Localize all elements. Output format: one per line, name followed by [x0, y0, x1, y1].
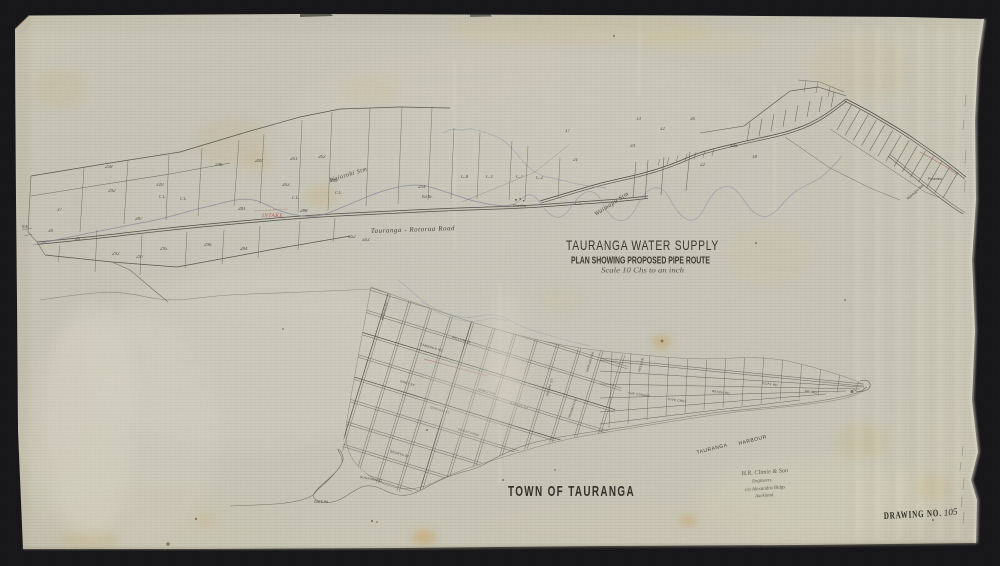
svg-text:105: 105 [943, 507, 958, 519]
svg-text:269: 269 [255, 159, 263, 164]
svg-text:320: 320 [156, 183, 164, 188]
svg-text:288: 288 [300, 209, 308, 214]
svg-text:254: 254 [418, 185, 426, 190]
svg-text:287: 287 [135, 217, 143, 222]
svg-text:262: 262 [318, 155, 326, 160]
svg-text:261: 261 [290, 157, 298, 162]
svg-text:C.L.: C.L. [335, 190, 342, 195]
svg-text:C.2: C.2 [536, 176, 544, 181]
svg-text:21: 21 [573, 158, 578, 163]
svg-text:17: 17 [565, 129, 571, 134]
svg-text:W.R.: W.R. [22, 225, 29, 229]
svg-text:292: 292 [108, 189, 116, 194]
svg-text:TAURANGA WATER SUPPLY: TAURANGA WATER SUPPLY [566, 238, 719, 253]
svg-text:INTAKE: INTAKE [261, 213, 283, 219]
svg-text:C.L.: C.L. [292, 195, 299, 200]
svg-text:40a: 40a [730, 144, 738, 149]
svg-text:C.L.: C.L. [159, 194, 166, 199]
svg-text:36: 36 [690, 117, 696, 122]
svg-text:18: 18 [752, 155, 758, 160]
svg-text:TOWN OF TAURANGA: TOWN OF TAURANGA [508, 484, 635, 500]
svg-text:263: 263 [282, 183, 290, 188]
svg-text:13: 13 [636, 117, 642, 122]
svg-text:37: 37 [57, 208, 63, 213]
svg-text:295: 295 [160, 247, 168, 252]
svg-text:292: 292 [112, 252, 120, 257]
svg-text:258: 258 [105, 165, 113, 170]
svg-text:296: 296 [204, 243, 212, 248]
svg-text:Ed.Re.: Ed.Re. [421, 194, 433, 199]
svg-text:Pukemiro: Pukemiro [928, 177, 942, 181]
svg-text:GATE PA: GATE PA [314, 500, 329, 504]
svg-text:284: 284 [240, 247, 248, 252]
svg-text:281: 281 [238, 207, 246, 212]
svg-text:C.7: C.7 [516, 175, 524, 180]
svg-text:Greerton: Greerton [513, 204, 526, 208]
svg-text:C.1.: C.1. [575, 201, 582, 206]
svg-text:297: 297 [136, 255, 144, 260]
svg-text:246: 246 [215, 163, 223, 168]
svg-text:563: 563 [362, 238, 370, 243]
svg-text:34: 34 [630, 144, 636, 149]
svg-text:C.8: C.8 [461, 175, 469, 180]
svg-text:Scale 10 Chs to an inch: Scale 10 Chs to an inch [601, 266, 684, 275]
svg-text:36: 36 [75, 237, 81, 242]
svg-text:562: 562 [348, 235, 356, 240]
svg-text:30: 30 [48, 229, 54, 234]
svg-text:22: 22 [700, 163, 706, 168]
svg-text:C.L.: C.L. [180, 196, 187, 201]
svg-text:C.1: C.1 [486, 175, 493, 180]
svg-text:32: 32 [660, 127, 666, 132]
